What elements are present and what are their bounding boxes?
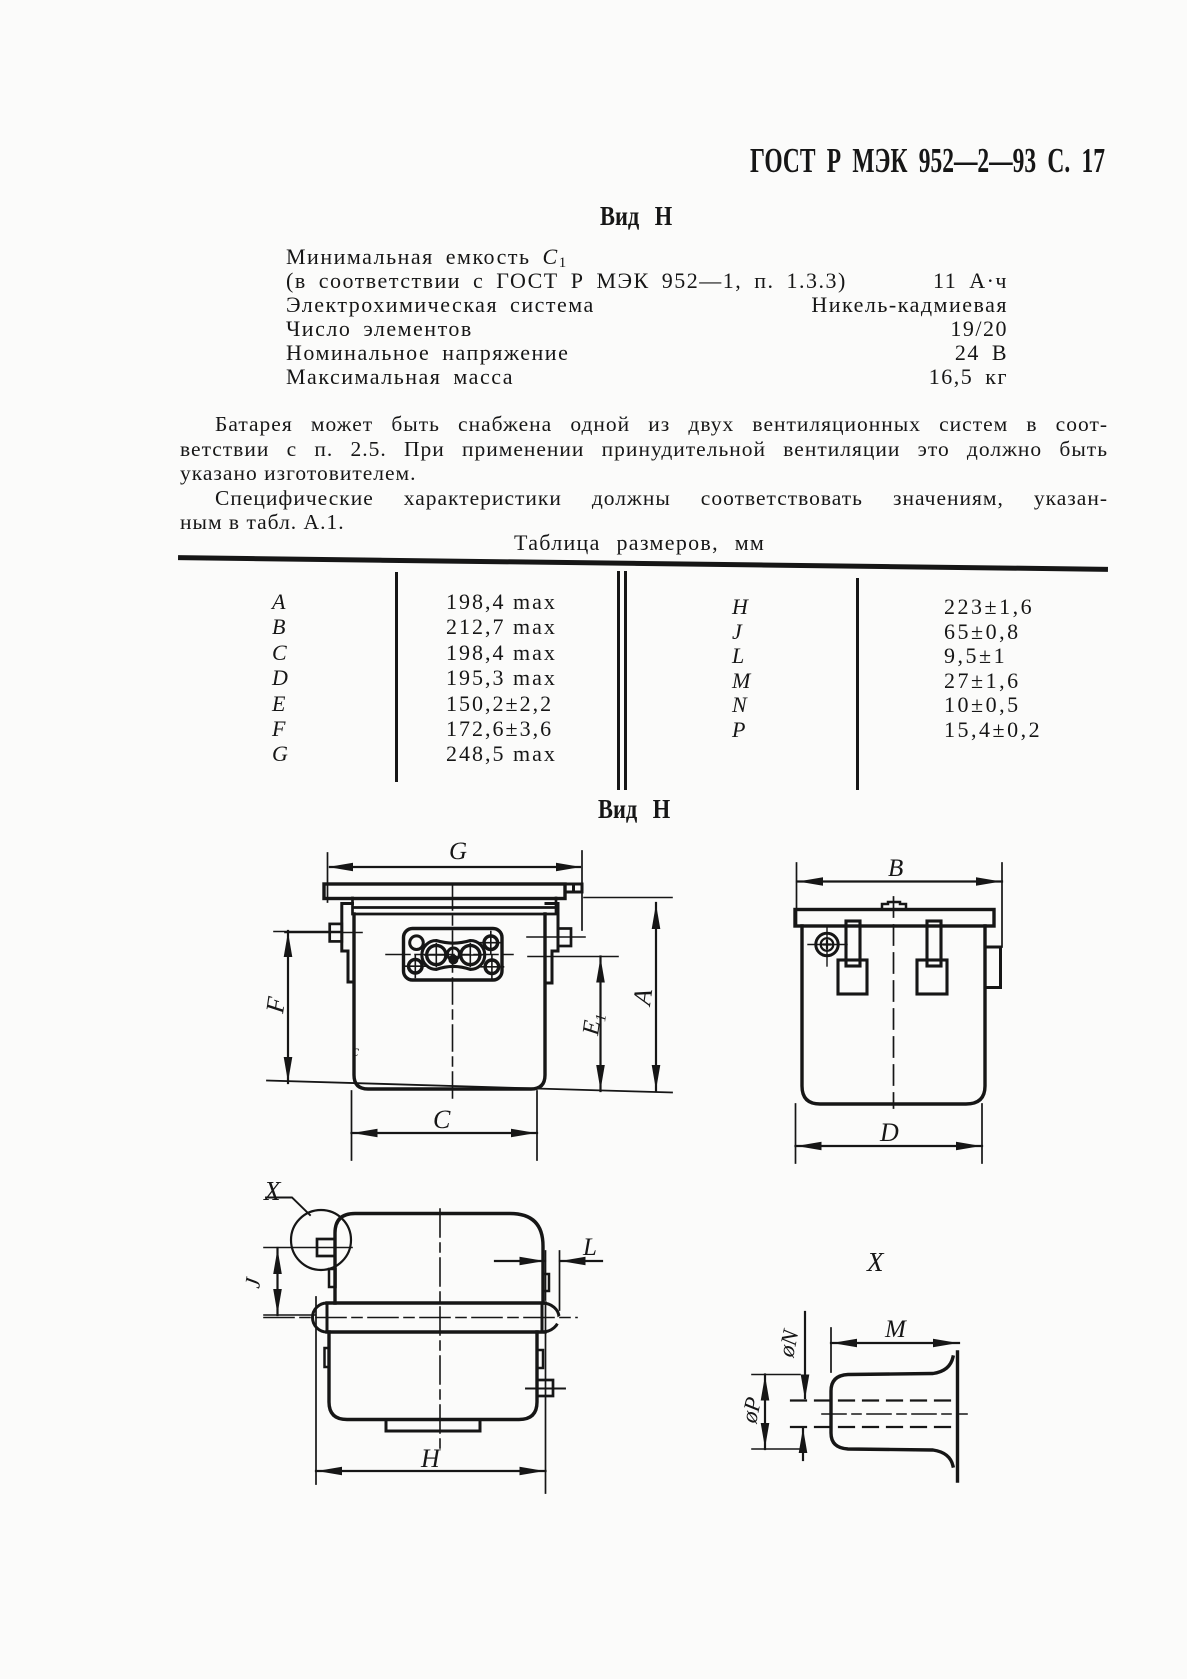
- svg-text:X: X: [263, 1176, 282, 1206]
- svg-text:øN: øN: [773, 1326, 804, 1360]
- svg-text:D: D: [879, 1118, 899, 1147]
- svg-text:C: C: [433, 1105, 451, 1134]
- svg-text:A: A: [627, 987, 658, 1009]
- svg-text:F: F: [260, 994, 291, 1016]
- svg-text:c: c: [352, 1043, 359, 1060]
- svg-text:M: M: [884, 1316, 907, 1343]
- svg-text:J: J: [239, 1275, 266, 1290]
- svg-text:H: H: [420, 1444, 441, 1473]
- svg-text:G: G: [449, 838, 467, 865]
- svg-text:X: X: [866, 1247, 885, 1277]
- svg-text:E1: E1: [578, 1011, 610, 1038]
- svg-text:B: B: [888, 855, 903, 882]
